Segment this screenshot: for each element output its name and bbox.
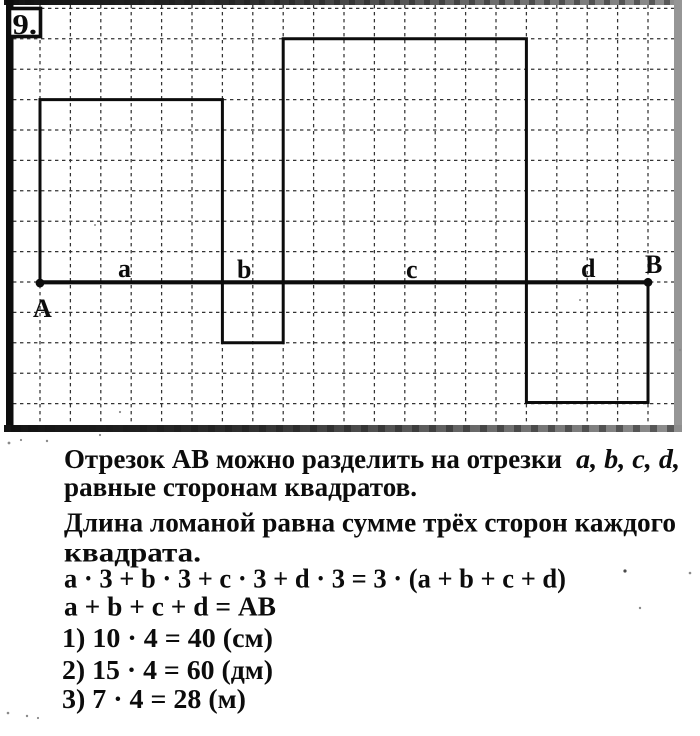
svg-text:3) 7 · 4 = 28 (м): 3) 7 · 4 = 28 (м) (62, 684, 246, 714)
svg-text:Отрезок АВ можно разделить на: Отрезок АВ можно разделить на отрезки (64, 444, 562, 474)
svg-text:2) 15 · 4 = 60 (дм): 2) 15 · 4 = 60 (дм) (62, 655, 273, 685)
svg-text:d: d (581, 254, 596, 283)
svg-text:a · 3 + b · 3 + c · 3 + d · 3: a · 3 + b · 3 + c · 3 + d · 3 = 3 · (a +… (64, 564, 566, 594)
svg-text:b: b (237, 255, 251, 284)
svg-text:Длина ломаной равна сумме трёх: Длина ломаной равна сумме трёх сторон ка… (64, 508, 676, 538)
svg-text:A: A (33, 294, 52, 323)
svg-text:1) 10 · 4 = 40 (см): 1) 10 · 4 = 40 (см) (62, 623, 273, 653)
svg-text:9.: 9. (13, 9, 38, 41)
svg-text:a, b, c, d,: a, b, c, d, (576, 444, 680, 474)
svg-text:равные сторонам квадратов.: равные сторонам квадратов. (64, 472, 417, 502)
svg-text:a: a (118, 254, 131, 283)
svg-text:a + b + c + d = АВ: a + b + c + d = АВ (64, 592, 276, 622)
svg-text:B: B (645, 250, 662, 279)
svg-text:c: c (406, 255, 418, 284)
